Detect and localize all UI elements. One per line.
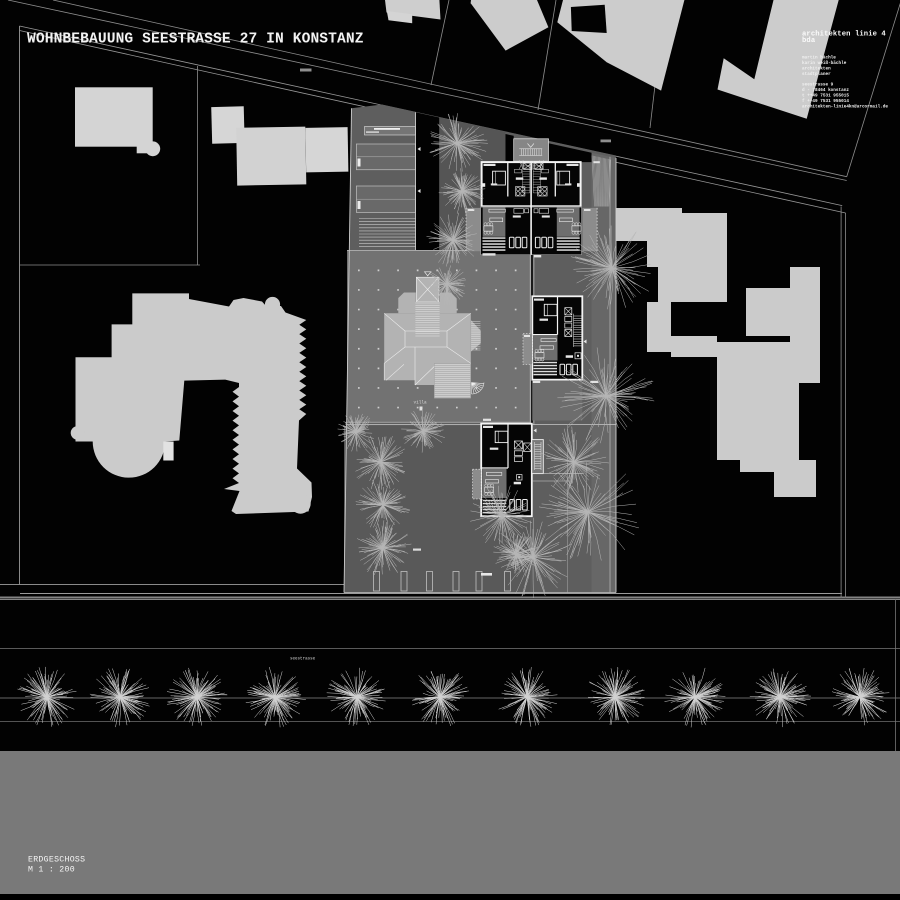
svg-text:t ++49 7531 955015: t ++49 7531 955015 xyxy=(802,93,849,98)
svg-text:villa: villa xyxy=(414,401,428,406)
svg-text:WOHNBEBAUUNG SEESTRASSE 27 IN: WOHNBEBAUUNG SEESTRASSE 27 IN KONSTANZ xyxy=(27,32,364,48)
svg-text:architekten-linie4kn@arcormail: architekten-linie4kn@arcormail.de xyxy=(802,104,888,109)
svg-text:martin bächle: martin bächle xyxy=(802,55,836,60)
svg-text:seestrasse: seestrasse xyxy=(290,658,316,662)
svg-text:d - 78464 konstanz: d - 78464 konstanz xyxy=(802,88,849,93)
svg-text:architekten: architekten xyxy=(802,66,831,71)
svg-text:karin weiß-bächle: karin weiß-bächle xyxy=(802,61,847,66)
svg-text:ERDGESCHOSS: ERDGESCHOSS xyxy=(28,856,85,865)
svg-text:stadtplaner: stadtplaner xyxy=(802,72,831,77)
svg-text:f ++49 7531 955014: f ++49 7531 955014 xyxy=(802,99,849,104)
svg-text:bda: bda xyxy=(802,37,816,45)
svg-text:M 1 : 200: M 1 : 200 xyxy=(28,866,75,875)
svg-text:seestrasse 9: seestrasse 9 xyxy=(802,82,834,87)
